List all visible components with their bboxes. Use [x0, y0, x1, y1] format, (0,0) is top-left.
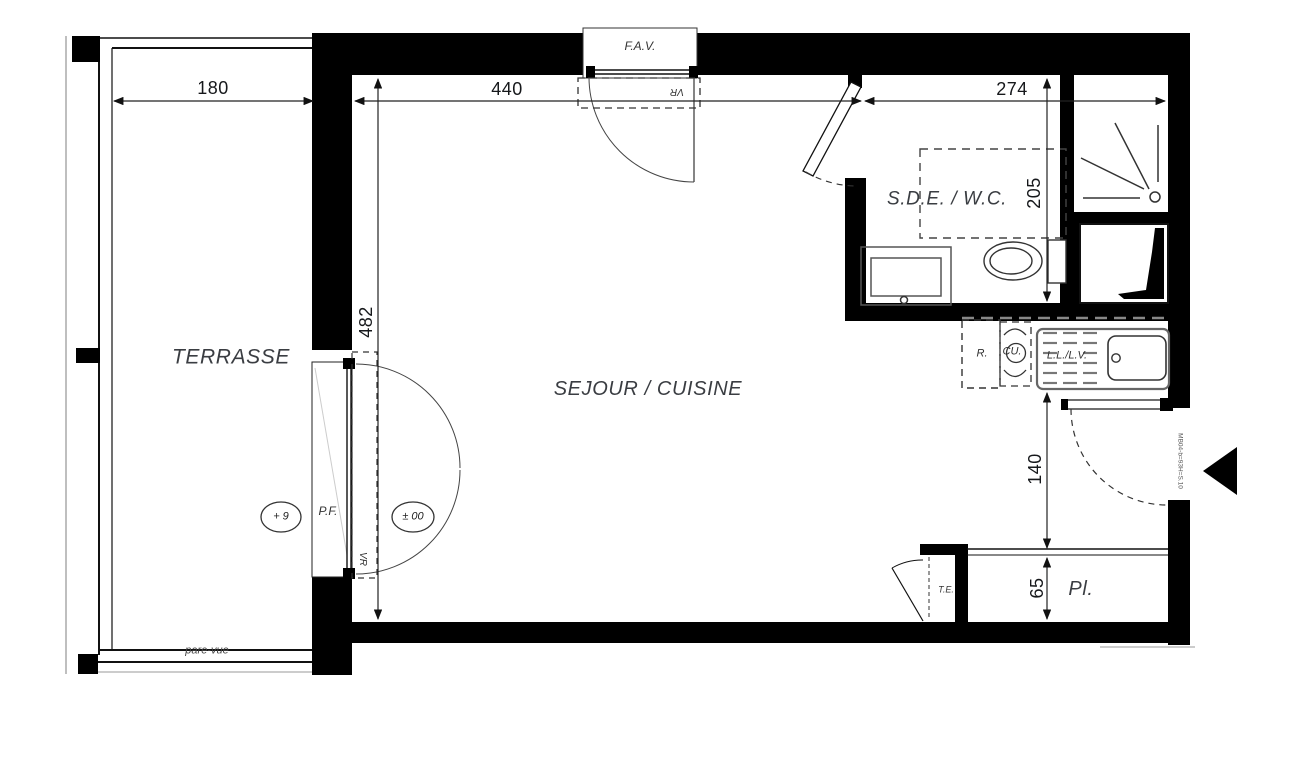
- te-cabinet: [892, 557, 929, 621]
- privacy-screen-label: pare-vue: [185, 646, 228, 657]
- dim-label-entry-depth: 140: [1026, 453, 1044, 485]
- floor-level-value: ± 00: [402, 512, 423, 523]
- fav-window-label: F.A.V.: [625, 40, 656, 52]
- pf-french-window: [312, 358, 460, 579]
- entrance-arrow: [1203, 447, 1237, 495]
- vanity-basin: [861, 247, 951, 305]
- closet-front-lines: [967, 549, 1168, 555]
- roller-shutter-label-left: VR: [357, 552, 367, 566]
- room-label-closet: Pl.: [1068, 579, 1093, 599]
- terrace-level-value: + 9: [273, 512, 289, 523]
- kitchen-sink: [1108, 336, 1166, 380]
- room-label-living-kitchen: SEJOUR / CUISINE: [554, 379, 743, 399]
- washer-dishwasher-label: L.L./L.V.: [1047, 351, 1087, 362]
- dim-label-terrace-width: 180: [197, 79, 229, 97]
- french-window-label: P.F.: [319, 505, 338, 517]
- fridge-label: R.: [977, 349, 988, 360]
- technical-duct: [1080, 224, 1168, 303]
- entry-door-swing: [1061, 398, 1173, 505]
- electrical-panel-label: T.E.: [938, 586, 954, 595]
- toilet: [984, 240, 1066, 283]
- roller-shutter-label-top: VR: [670, 86, 684, 96]
- dim-label-shower-room-depth: 205: [1025, 177, 1043, 209]
- cooktop-label: CU.: [1003, 347, 1022, 358]
- sde-door-swing: [803, 82, 861, 186]
- shower: [1081, 123, 1160, 202]
- roller-shutter-box-left: [352, 352, 377, 578]
- dim-label-living-depth: 482: [357, 306, 375, 338]
- dim-label-closet-depth: 65: [1028, 577, 1046, 598]
- room-label-terrace: TERRASSE: [172, 347, 290, 368]
- dim-label-living-width: 440: [491, 80, 523, 98]
- floor-plan: 180 440 274 482 205 140 65 TERRASSE SEJO…: [0, 0, 1298, 773]
- room-label-shower-wc: S.D.E. / W.C.: [887, 190, 1007, 209]
- entry-door-ref-label: MB04-b=93H=S.10: [1176, 433, 1183, 489]
- dim-label-right-wing-width: 274: [996, 80, 1028, 98]
